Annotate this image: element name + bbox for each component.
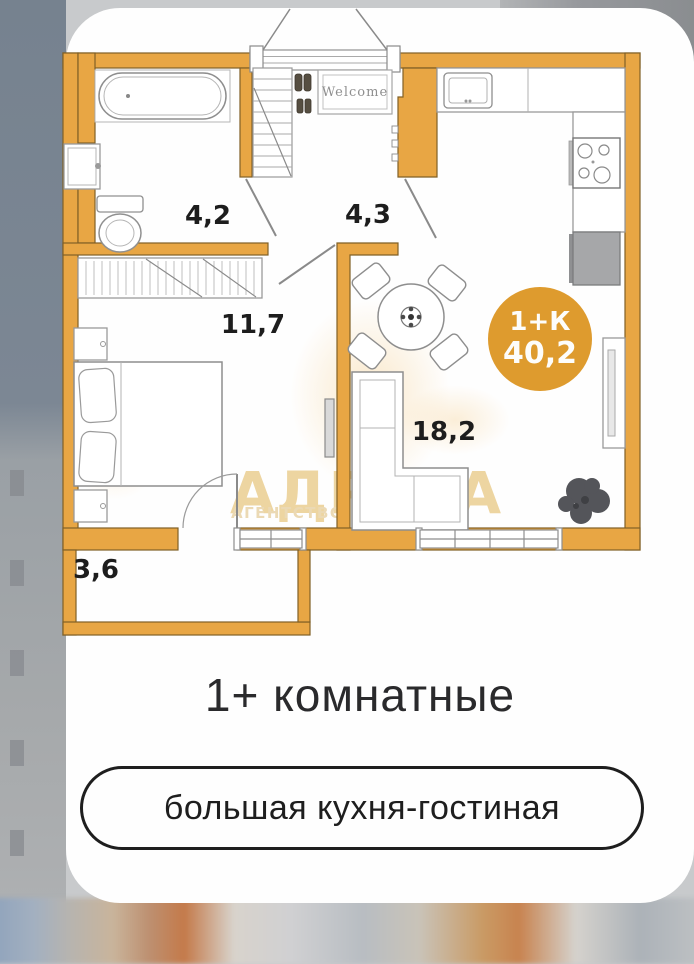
badge-type: 1+К [509, 307, 570, 337]
wall-ticks [392, 126, 398, 161]
screenshot-root: { "plan": { "rooms": [ {"name": "bathroo… [0, 0, 694, 960]
refrigerator [569, 232, 620, 285]
badge-total-area: 40,2 [503, 337, 577, 371]
room-area-balcony: 3,6 [73, 555, 119, 585]
listing-heading: 1+ комнатные [30, 668, 690, 722]
room-area-bedroom: 11,7 [221, 310, 285, 340]
entrance-door [250, 9, 400, 72]
room-area-hallway: 4,3 [345, 200, 391, 230]
bathtub [95, 70, 230, 122]
room-area-bathroom: 4,2 [185, 201, 231, 231]
dining-table [378, 284, 444, 350]
wardrobe [78, 258, 262, 298]
bathroom-sink [64, 144, 101, 189]
toilet [97, 196, 143, 252]
feature-pill-label: большая кухня-гостиная [164, 789, 560, 828]
tv-icon [325, 399, 334, 457]
apartment-type-badge: 1+К 40,2 [488, 287, 592, 391]
hall-closet [253, 68, 292, 177]
room-area-kitchen-living: 18,2 [412, 417, 476, 447]
stove [569, 138, 620, 188]
bed [74, 362, 222, 486]
tv-console [603, 338, 625, 448]
shoes-icon [295, 74, 311, 113]
welcome-mat-label: Welcome [318, 70, 392, 114]
kitchen-sink [444, 73, 492, 108]
sofa [352, 372, 468, 530]
feature-pill: большая кухня-гостиная [80, 766, 644, 850]
plant-icon [558, 478, 610, 524]
